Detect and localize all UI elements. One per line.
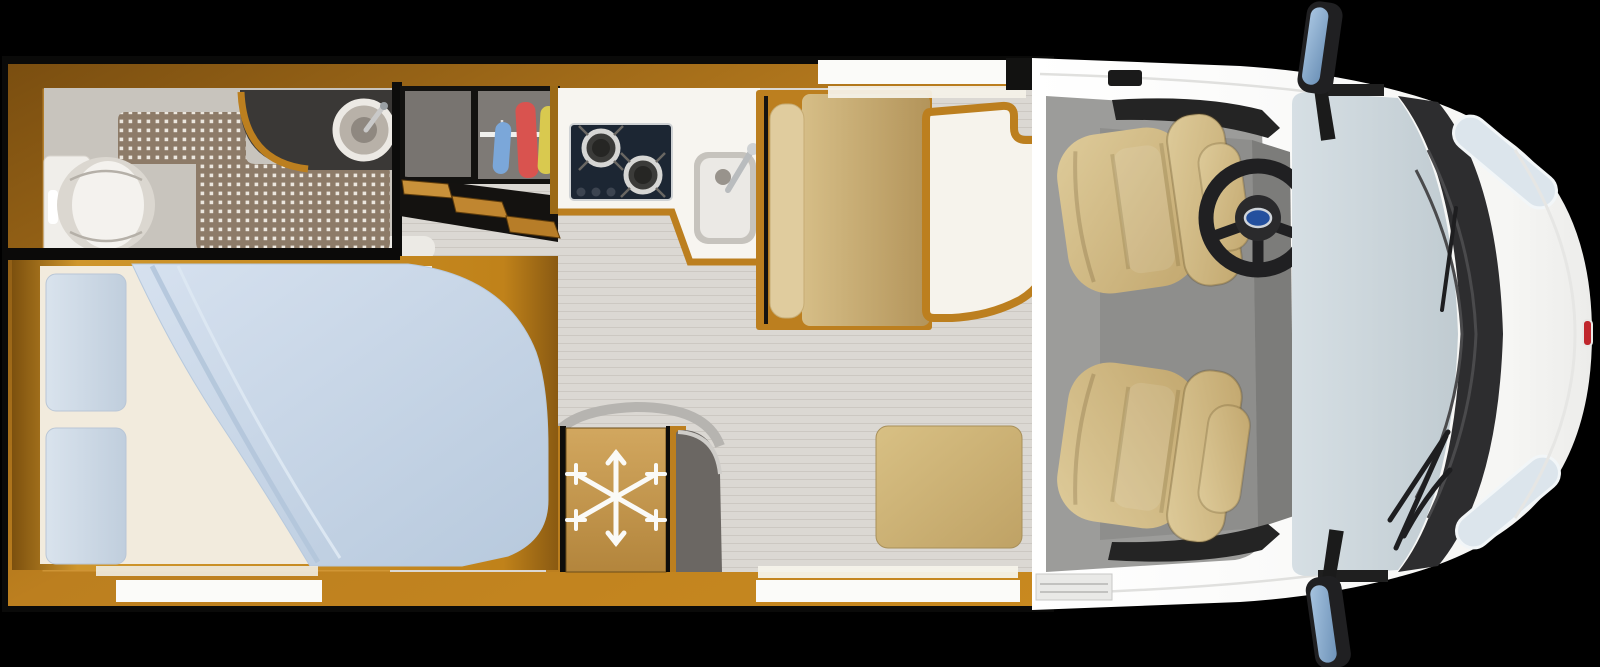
dinette-bottom-window-inner [758, 566, 1018, 578]
hob-knobs [577, 188, 616, 197]
pillow-bottom [46, 428, 126, 564]
kitchen-side-panel [550, 86, 558, 214]
bed-bottom-window-inner [96, 566, 318, 576]
wardrobe [400, 86, 560, 242]
bedroom [4, 248, 558, 570]
bed-bathroom-divider [4, 248, 400, 260]
driver-seat [1051, 109, 1257, 305]
bed-bottom-window [116, 580, 322, 602]
front-badge [1583, 320, 1592, 346]
wardrobe-shelf-left [405, 91, 471, 177]
kitchen-sink [694, 143, 759, 244]
clothes-red [515, 102, 539, 179]
toilet [44, 156, 155, 254]
bench-seat-cushion [802, 94, 930, 326]
dinette-bottom-window [756, 580, 1020, 602]
burner-front [579, 126, 623, 170]
passenger-seat [1051, 351, 1257, 547]
roof-handle [1108, 70, 1142, 86]
pillow-top [46, 274, 126, 411]
dinette-table [926, 106, 1050, 318]
brand-badge-oval [1245, 209, 1271, 227]
motorhome-floorplan [0, 0, 1600, 667]
sink-drain [715, 169, 731, 185]
washbasin [336, 102, 392, 158]
dinette-top-window [818, 60, 1032, 84]
dinette-top-window-inner [828, 86, 1026, 98]
cab-entry-step [1036, 574, 1112, 600]
bathroom [44, 88, 435, 260]
floorplan-canvas [0, 0, 1600, 667]
two-burner-hob [570, 124, 672, 200]
burner-rear [621, 153, 665, 197]
bench-backrest [770, 104, 804, 318]
flush-button [48, 190, 58, 224]
ottoman [876, 426, 1022, 548]
